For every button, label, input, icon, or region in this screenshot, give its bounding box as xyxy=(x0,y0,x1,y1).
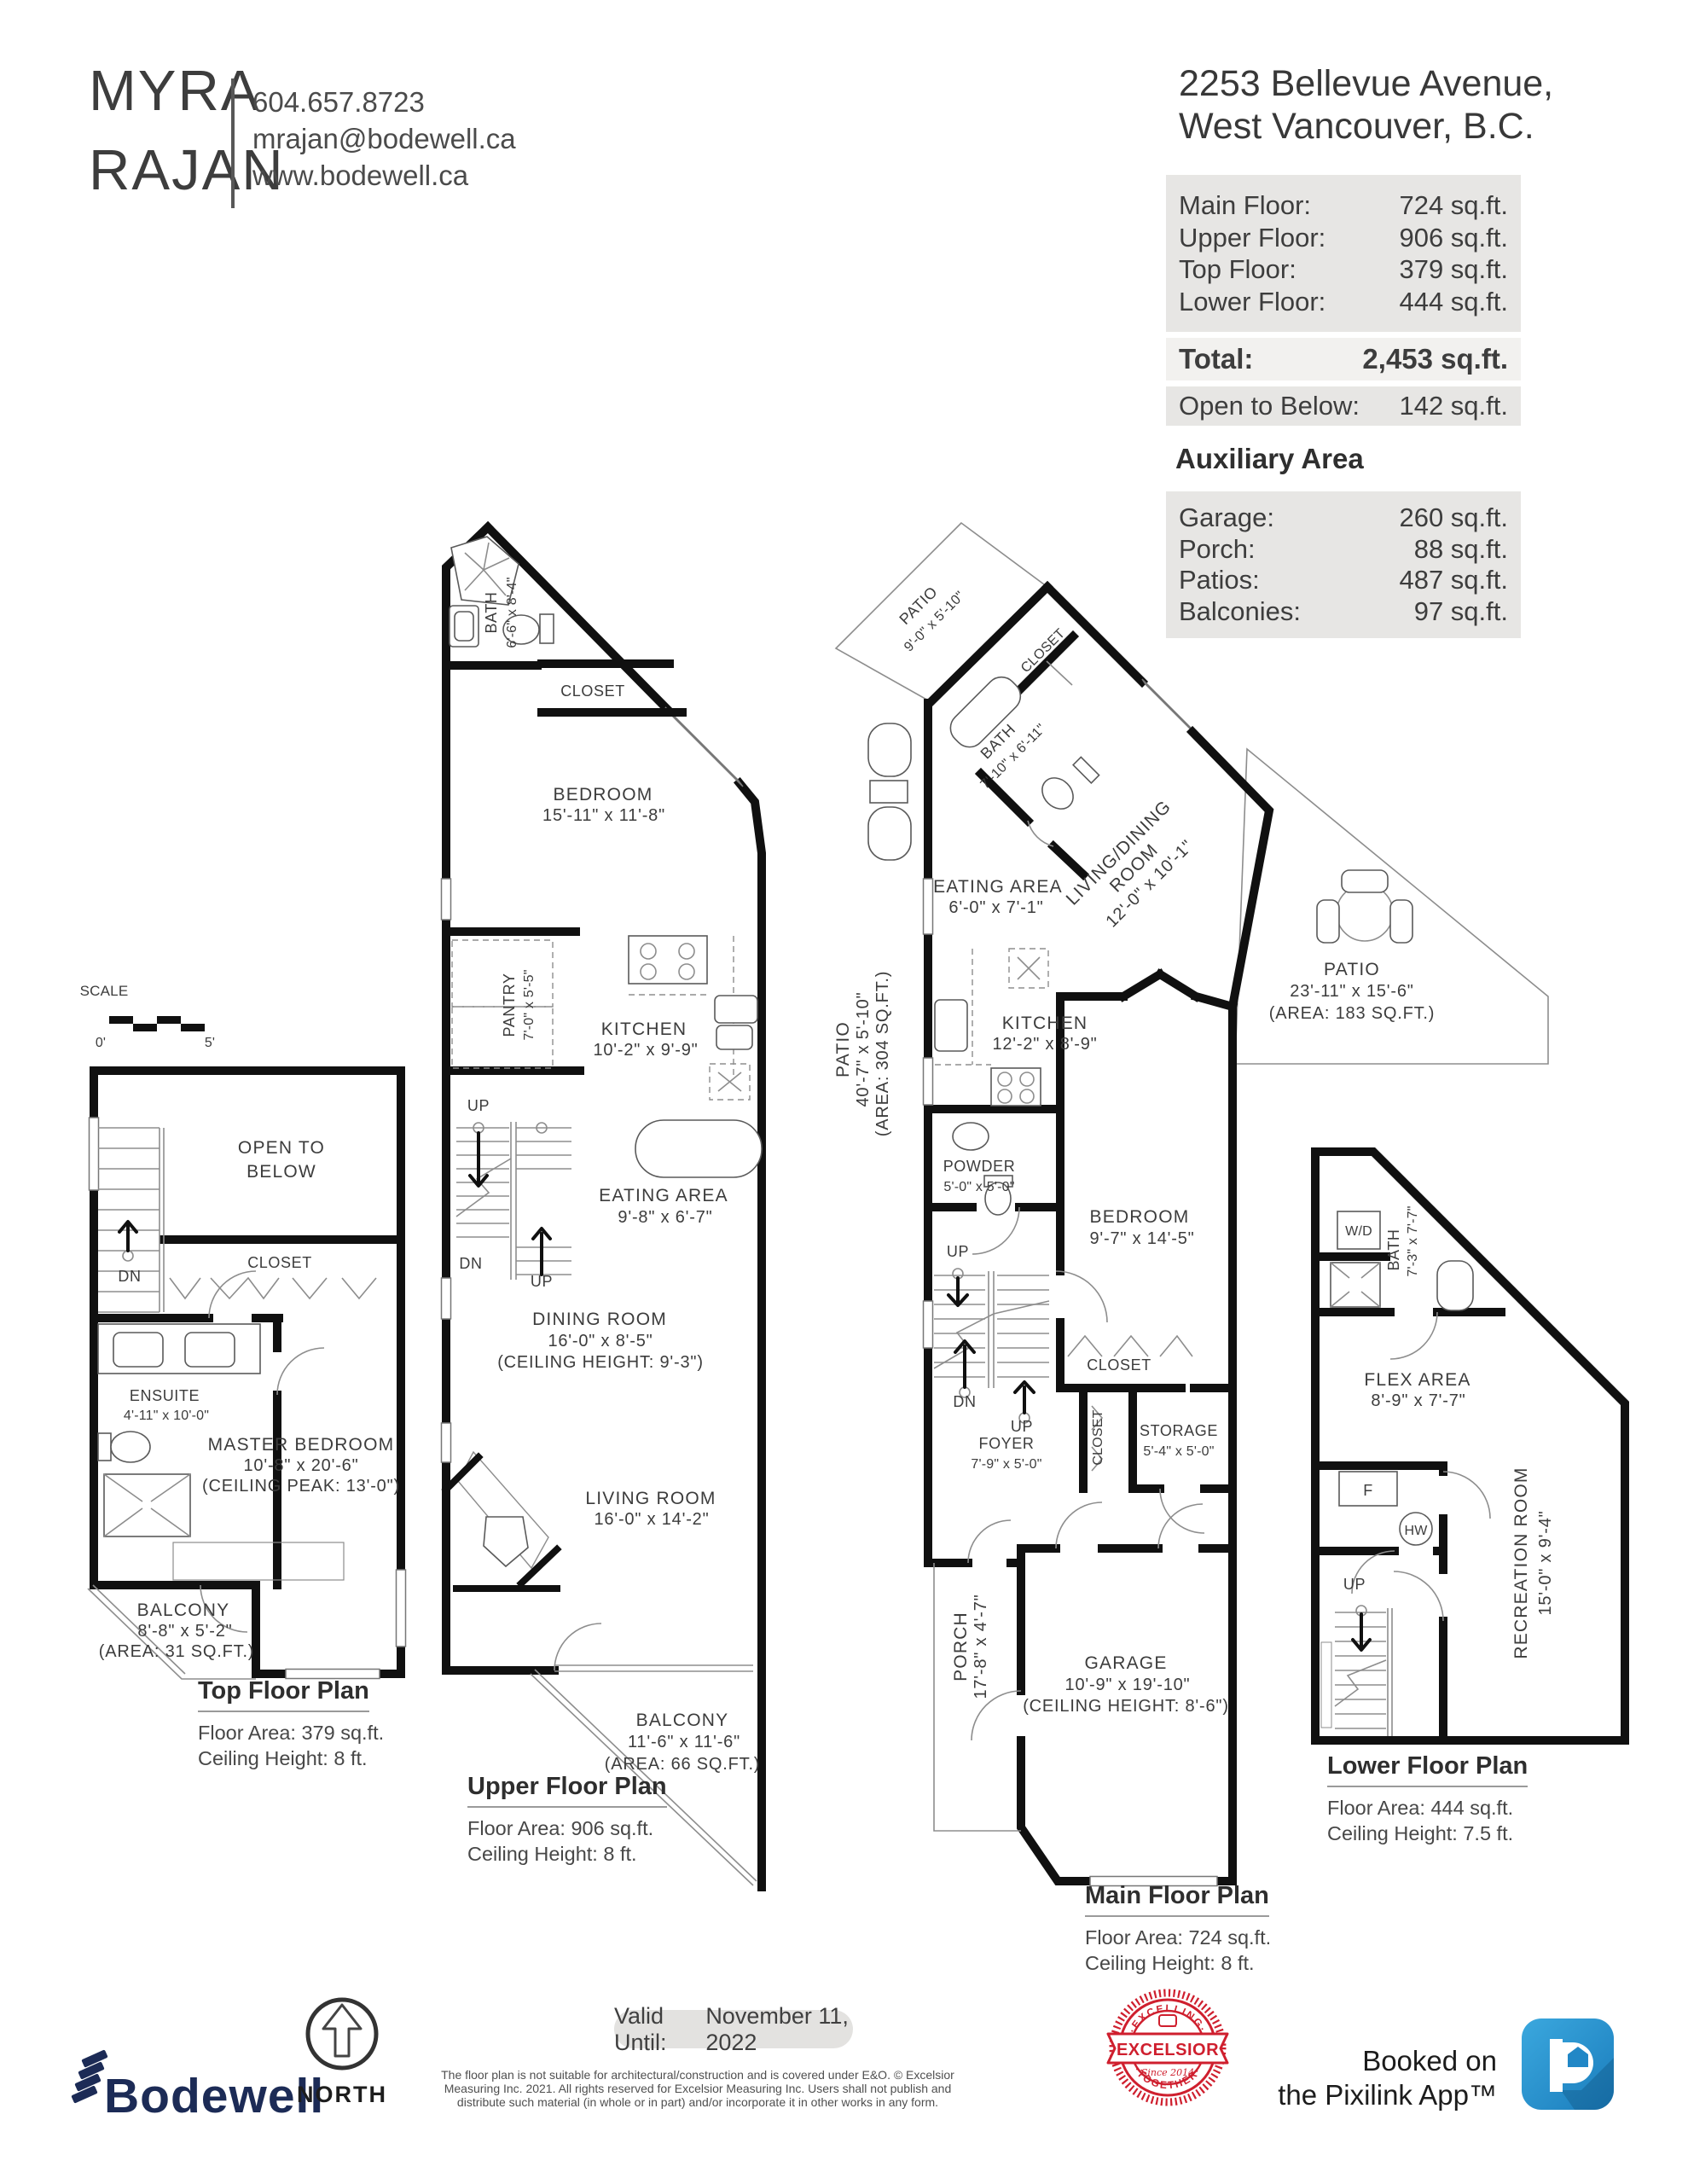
main-plan-outdoor-chairs xyxy=(868,723,911,860)
stair-label-up2: UP xyxy=(531,1273,553,1290)
room-dims-powder: 5'-0" x 5'-0" xyxy=(943,1180,1014,1194)
room-label-master-bedroom: MASTER BEDROOM xyxy=(208,1435,395,1455)
top-floor-plan: OPEN TO BELOW CLOSET DN ENSUITE 4'-11" x… xyxy=(81,1058,414,1689)
room-dims-pantry: 7'-0" x 5'-5" xyxy=(522,969,537,1040)
upper-plan-fireplace xyxy=(446,1452,557,1589)
floor-plan-sheet: MYRA RAJAN 604.657.8723 mrajan@bodewell.… xyxy=(0,0,1688,2184)
main-plan-stairs xyxy=(934,1269,1049,1423)
scale-bar-segments xyxy=(109,1016,205,1031)
room-dims-flex-area: 8'-9" x 7'-7" xyxy=(1371,1391,1465,1410)
caption-area: Floor Area: 444 sq.ft. xyxy=(1327,1795,1528,1821)
valid-until-label: Valid Until: xyxy=(614,2003,693,2056)
room-dims-garage: 10'-9" x 19'-10" xyxy=(1065,1676,1191,1694)
room-label-eating-area: EATING AREA xyxy=(933,877,1063,897)
room-label-ensuite: ENSUITE xyxy=(130,1387,200,1404)
total-row: Total:2,453 sq.ft. xyxy=(1166,338,1521,380)
row-value: 444 sq.ft. xyxy=(1399,286,1508,318)
booked-line1: Booked on xyxy=(1241,2044,1497,2078)
row-label: Upper Floor: xyxy=(1179,222,1325,254)
room-ceiling-master-bedroom: (CEILING PEAK: 13'-0") xyxy=(202,1477,400,1496)
room-label-patio-east: PATIO xyxy=(1324,960,1380,979)
upper-floor-plan: BATH 6'-6" x 8'-4" CLOSET BEDROOM 15'-11… xyxy=(439,520,780,1894)
row-label: Lower Floor: xyxy=(1179,286,1325,318)
caption-ceiling: Ceiling Height: 7.5 ft. xyxy=(1327,1821,1528,1846)
room-label-storage: STORAGE xyxy=(1140,1422,1218,1439)
room-label-closet: CLOSET xyxy=(560,682,625,700)
agent-email: mrajan@bodewell.ca xyxy=(252,120,516,157)
stamp-since: Since 2014 xyxy=(1141,2067,1194,2078)
floor-areas-block: Main Floor:724 sq.ft. Upper Floor:906 sq… xyxy=(1166,175,1521,332)
room-label-recreation: RECREATION ROOM xyxy=(1511,1467,1531,1658)
room-dims-bedroom: 15'-11" x 11'-8" xyxy=(542,806,665,825)
address-line1: 2253 Bellevue Avenue, xyxy=(1179,62,1553,105)
valid-until-date: November 11, 2022 xyxy=(705,2003,853,2056)
room-label-foyer: FOYER xyxy=(978,1435,1034,1452)
lower-plan-stairs xyxy=(1335,1606,1392,1736)
upper-floor-caption: Upper Floor Plan Floor Area: 906 sq.ft. … xyxy=(467,1773,667,1867)
caption-area: Floor Area: 379 sq.ft. xyxy=(198,1720,384,1745)
room-label-closet: CLOSET xyxy=(247,1254,312,1271)
room-area-patio-east: (AREA: 183 SQ.FT.) xyxy=(1269,1004,1435,1023)
stair-label-up2: UP xyxy=(1011,1418,1033,1435)
room-area-balcony: (AREA: 31 SQ.FT.) xyxy=(99,1642,255,1661)
appliance-label-f: F xyxy=(1363,1482,1373,1499)
room-dims-kitchen: 10'-2" x 9'-9" xyxy=(593,1041,698,1060)
room-dims-balcony: 8'-8" x 5'-2" xyxy=(137,1622,232,1641)
door-arc xyxy=(277,1348,324,1395)
scale-label: SCALE xyxy=(80,983,129,999)
room-dims-balcony: 11'-6" x 11'-6" xyxy=(628,1733,740,1751)
north-compass-icon xyxy=(303,1995,381,2073)
main-plan-doors xyxy=(968,821,1204,1740)
room-label-powder: POWDER xyxy=(943,1158,1016,1175)
table-row: Lower Floor:444 sq.ft. xyxy=(1166,286,1521,318)
room-label-open-to-below: OPEN TO xyxy=(238,1138,325,1158)
scale-zero: 0' xyxy=(96,1036,106,1050)
room-dims-porch: 17'-8" x 4'-7" xyxy=(972,1594,990,1699)
room-dims-storage: 5'-4" x 5'-0" xyxy=(1143,1444,1214,1459)
room-label-kitchen: KITCHEN xyxy=(601,1019,687,1039)
room-label-flex-area: FLEX AREA xyxy=(1364,1370,1470,1390)
caption-ceiling: Ceiling Height: 8 ft. xyxy=(467,1841,667,1867)
disclaimer-line: The floor plan is not suitable for archi… xyxy=(403,2068,992,2082)
stamp-name: EXCELSIOR xyxy=(1117,2041,1219,2059)
caption-title: Top Floor Plan xyxy=(198,1677,369,1712)
upper-plan-bath-fixtures xyxy=(450,537,554,647)
measuring-tape-icon xyxy=(1159,2015,1176,2026)
room-label-pantry: PANTRY xyxy=(501,973,518,1037)
room-label-balcony: BALCONY xyxy=(636,1711,729,1730)
stair-label-dn: DN xyxy=(953,1393,976,1410)
stair-label-up: UP xyxy=(1343,1576,1366,1593)
top-plan-closet-hangers xyxy=(170,1278,376,1298)
open-to-below-row: Open to Below:142 sq.ft. xyxy=(1166,386,1521,426)
booked-line2: the Pixilink App™ xyxy=(1241,2078,1497,2112)
room-area-balcony: (AREA: 66 SQ.FT.) xyxy=(605,1755,761,1774)
row-label: Main Floor: xyxy=(1179,189,1311,222)
table-row: Upper Floor:906 sq.ft. xyxy=(1166,222,1521,254)
caption-ceiling: Ceiling Height: 8 ft. xyxy=(1085,1950,1271,1976)
caption-ceiling: Ceiling Height: 8 ft. xyxy=(198,1745,384,1771)
excelsior-stamp-icon: ·EXCELLING· ·TOGETHER· EXCELSIOR Since 2… xyxy=(1103,1979,1233,2120)
room-label-dining-room: DINING ROOM xyxy=(532,1310,667,1329)
room-label-balcony: BALCONY xyxy=(137,1600,230,1620)
room-dims-patio-west: 40'-7" x 5'-10" xyxy=(854,991,873,1107)
pixilink-app-icon xyxy=(1522,2018,1614,2110)
disclaimer-text: The floor plan is not suitable for archi… xyxy=(403,2068,992,2109)
room-label-bath: BATH xyxy=(1385,1228,1402,1270)
room-label-bedroom: BEDROOM xyxy=(1090,1207,1190,1227)
room-dims-ensuite: 4'-11" x 10'-0" xyxy=(124,1409,209,1423)
caption-title: Main Floor Plan xyxy=(1085,1882,1269,1917)
room-dims-master-bedroom: 10'-8" x 20'-6" xyxy=(243,1456,358,1475)
room-dims-foyer: 7'-9" x 5'-0" xyxy=(971,1457,1041,1472)
address-line2: West Vancouver, B.C. xyxy=(1179,105,1553,148)
row-label: Top Floor: xyxy=(1179,253,1296,286)
room-dims-bedroom: 9'-7" x 14'-5" xyxy=(1089,1229,1194,1248)
scale-five: 5' xyxy=(205,1036,215,1050)
caption-title: Lower Floor Plan xyxy=(1327,1752,1528,1787)
upper-plan-walls xyxy=(446,527,762,1887)
row-value: 379 sq.ft. xyxy=(1399,253,1508,286)
lower-floor-caption: Lower Floor Plan Floor Area: 444 sq.ft. … xyxy=(1327,1752,1528,1846)
row-label: Open to Below: xyxy=(1179,386,1360,426)
booked-on-text: Booked on the Pixilink App™ xyxy=(1241,2044,1497,2112)
property-address: 2253 Bellevue Avenue, West Vancouver, B.… xyxy=(1179,62,1553,148)
room-label-bedroom: BEDROOM xyxy=(554,785,653,804)
stair-label-dn: DN xyxy=(118,1268,141,1285)
disclaimer-line: distribute such material (in whole or in… xyxy=(403,2095,992,2109)
room-label-kitchen: KITCHEN xyxy=(1002,1014,1088,1033)
agent-contact: 604.657.8723 mrajan@bodewell.ca www.bode… xyxy=(252,84,516,194)
caption-area: Floor Area: 724 sq.ft. xyxy=(1085,1925,1271,1950)
room-label-living-room: LIVING ROOM xyxy=(585,1489,716,1508)
scale-bar: SCALE 0' 5' xyxy=(84,977,229,1054)
room-dims-eating-area: 6'-0" x 7'-1" xyxy=(948,898,1043,917)
row-value: 142 sq.ft. xyxy=(1399,386,1508,426)
room-label-bath: BATH xyxy=(483,591,500,633)
lower-floor-plan: W/D BATH 7'-3" x 7'-7" FLEX AREA 8'-9" x… xyxy=(1305,1143,1638,1766)
room-label-eating-area: EATING AREA xyxy=(599,1186,728,1205)
stair-label-up: UP xyxy=(947,1243,969,1260)
room-dims-kitchen: 12'-2" x 8'-9" xyxy=(992,1035,1097,1054)
total-value: 2,453 sq.ft. xyxy=(1362,338,1508,380)
agent-website: www.bodewell.ca xyxy=(252,157,516,194)
agent-phone: 604.657.8723 xyxy=(252,84,516,120)
north-label: NORTH xyxy=(281,2082,403,2108)
main-plan-closet-nw xyxy=(1047,661,1072,685)
stair-label-up: UP xyxy=(467,1097,490,1114)
header-divider xyxy=(231,78,235,208)
auxiliary-heading: Auxiliary Area xyxy=(1175,443,1521,475)
room-label-porch: PORCH xyxy=(951,1612,971,1682)
table-row: Top Floor:379 sq.ft. xyxy=(1166,253,1521,286)
room-dims-patio-east: 23'-11" x 15'-6" xyxy=(1290,982,1413,1001)
upper-plan-kitchen-fixtures xyxy=(629,936,757,1100)
room-area-patio-west: (AREA: 304 SQ.FT.) xyxy=(873,971,892,1136)
row-value: 724 sq.ft. xyxy=(1399,189,1508,222)
room-label-garage: GARAGE xyxy=(1084,1653,1167,1673)
room-label-closet: CLOSET xyxy=(1087,1356,1151,1374)
row-value: 906 sq.ft. xyxy=(1399,222,1508,254)
room-label-closet-2: CLOSET xyxy=(1091,1409,1105,1465)
room-ceiling-garage: (CEILING HEIGHT: 8'-6") xyxy=(1023,1697,1229,1716)
room-dims-eating-area: 9'-8" x 6'-7" xyxy=(618,1208,712,1227)
upper-plan-eating-counter xyxy=(635,1120,762,1177)
total-label: Total: xyxy=(1179,338,1253,380)
room-dims-bath: 7'-3" x 7'-7" xyxy=(1406,1205,1420,1276)
appliance-label-wd: W/D xyxy=(1345,1224,1372,1239)
room-label-patio-west: PATIO xyxy=(833,1021,853,1077)
caption-area: Floor Area: 906 sq.ft. xyxy=(467,1815,667,1841)
room-dims-bath: 6'-6" x 8'-4" xyxy=(505,577,519,648)
main-floor-caption: Main Floor Plan Floor Area: 724 sq.ft. C… xyxy=(1085,1882,1271,1976)
room-ceiling-dining-room: (CEILING HEIGHT: 9'-3") xyxy=(497,1353,704,1372)
room-dims-recreation: 15'-0" x 9'-4" xyxy=(1536,1510,1555,1615)
room-dims-dining-room: 16'-0" x 8'-5" xyxy=(548,1332,653,1350)
disclaimer-line: Measuring Inc. 2021. All rights reserved… xyxy=(403,2082,992,2095)
stair-label-dn: DN xyxy=(459,1255,482,1272)
caption-title: Upper Floor Plan xyxy=(467,1773,667,1808)
valid-until-pill: Valid Until: November 11, 2022 xyxy=(614,2010,853,2048)
table-row: Main Floor:724 sq.ft. xyxy=(1166,189,1521,222)
room-label-open-to-below-2: BELOW xyxy=(247,1162,316,1182)
top-floor-caption: Top Floor Plan Floor Area: 379 sq.ft. Ce… xyxy=(198,1677,384,1771)
appliance-label-hw: HW xyxy=(1404,1524,1428,1538)
room-dims-living-room: 16'-0" x 14'-2" xyxy=(594,1510,709,1529)
